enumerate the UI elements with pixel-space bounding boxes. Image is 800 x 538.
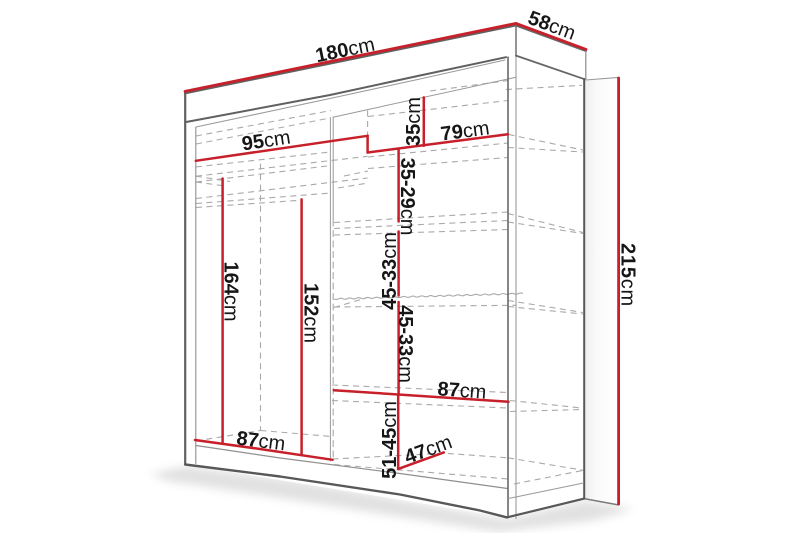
svg-text:45-33cm: 45-33cm <box>379 232 401 310</box>
svg-text:45-33cm: 45-33cm <box>394 305 416 383</box>
svg-text:87cm: 87cm <box>437 378 487 403</box>
svg-text:152cm: 152cm <box>300 283 322 343</box>
svg-text:35cm: 35cm <box>403 97 425 146</box>
svg-text:164cm: 164cm <box>220 261 242 321</box>
svg-text:35-29cm: 35-29cm <box>396 158 418 236</box>
svg-text:215cm: 215cm <box>617 243 639 307</box>
svg-text:51-45cm: 51-45cm <box>379 401 401 479</box>
